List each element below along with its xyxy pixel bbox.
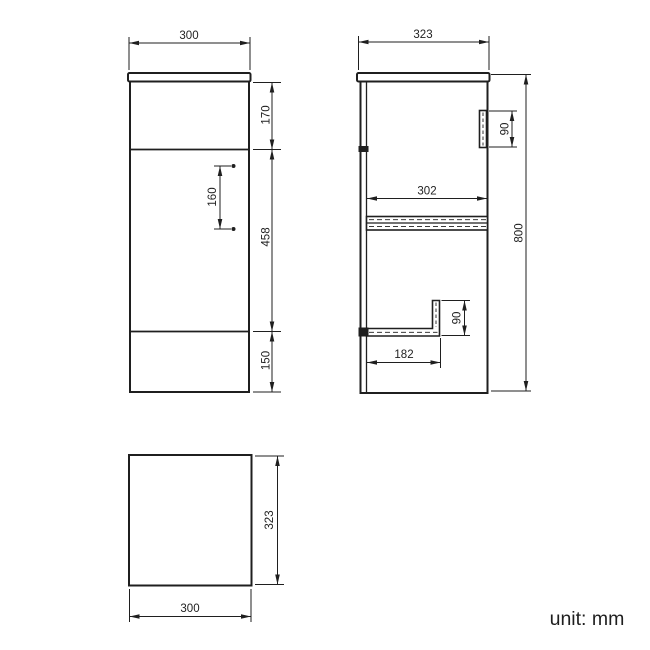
- front-body: [130, 82, 249, 393]
- top-dim-depth: 323: [255, 456, 284, 585]
- side-dim-internal-depth: 302: [367, 186, 487, 199]
- side-dim-recess-height-label: 90: [452, 312, 464, 325]
- front-dim-top-section-label: 170: [261, 105, 273, 124]
- front-dim-width: 300: [129, 30, 250, 70]
- side-view: 323 302 90 800: [357, 29, 531, 393]
- front-dim-plinth-label: 150: [261, 351, 273, 370]
- side-dim-depth: 323: [359, 29, 490, 70]
- drawing-svg: 160 300 170 458 150: [0, 0, 650, 650]
- front-dim-door-label: 458: [261, 227, 273, 246]
- side-handle: [480, 111, 487, 148]
- side-dim-height: 800: [491, 75, 531, 392]
- side-dim-recess-height: 90: [442, 301, 471, 336]
- handle-hole-top: [232, 164, 236, 168]
- side-dim-recess-depth-label: 182: [394, 349, 413, 361]
- side-dim-handle-length: 90: [489, 111, 517, 147]
- side-panel-joint: [359, 146, 369, 152]
- side-dim-internal-depth-label: 302: [417, 186, 436, 198]
- top-dim-width: 300: [130, 589, 252, 622]
- top-view: 323 300: [129, 455, 284, 622]
- front-dim-heights: 170 458 150: [253, 83, 281, 393]
- front-view: 160 300 170 458 150: [128, 30, 281, 392]
- handle-hole-bottom: [232, 227, 236, 231]
- side-worktop: [357, 73, 490, 82]
- technical-drawing-page: 160 300 170 458 150: [0, 0, 650, 650]
- side-shelf: [367, 217, 488, 231]
- top-view-outline: [129, 455, 252, 586]
- top-dim-depth-label: 323: [264, 510, 276, 529]
- unit-label: unit: mm: [550, 608, 625, 630]
- front-worktop: [128, 73, 251, 82]
- side-recess-bracket: [359, 301, 440, 337]
- front-dim-handle-spacing-label: 160: [207, 187, 219, 206]
- side-dim-height-label: 800: [514, 223, 526, 242]
- side-dim-handle-length-label: 90: [500, 123, 512, 136]
- side-dim-recess-depth: 182: [367, 338, 441, 368]
- front-dim-width-label: 300: [179, 30, 198, 42]
- top-dim-width-label: 300: [180, 603, 199, 615]
- side-dim-depth-label: 323: [413, 29, 432, 41]
